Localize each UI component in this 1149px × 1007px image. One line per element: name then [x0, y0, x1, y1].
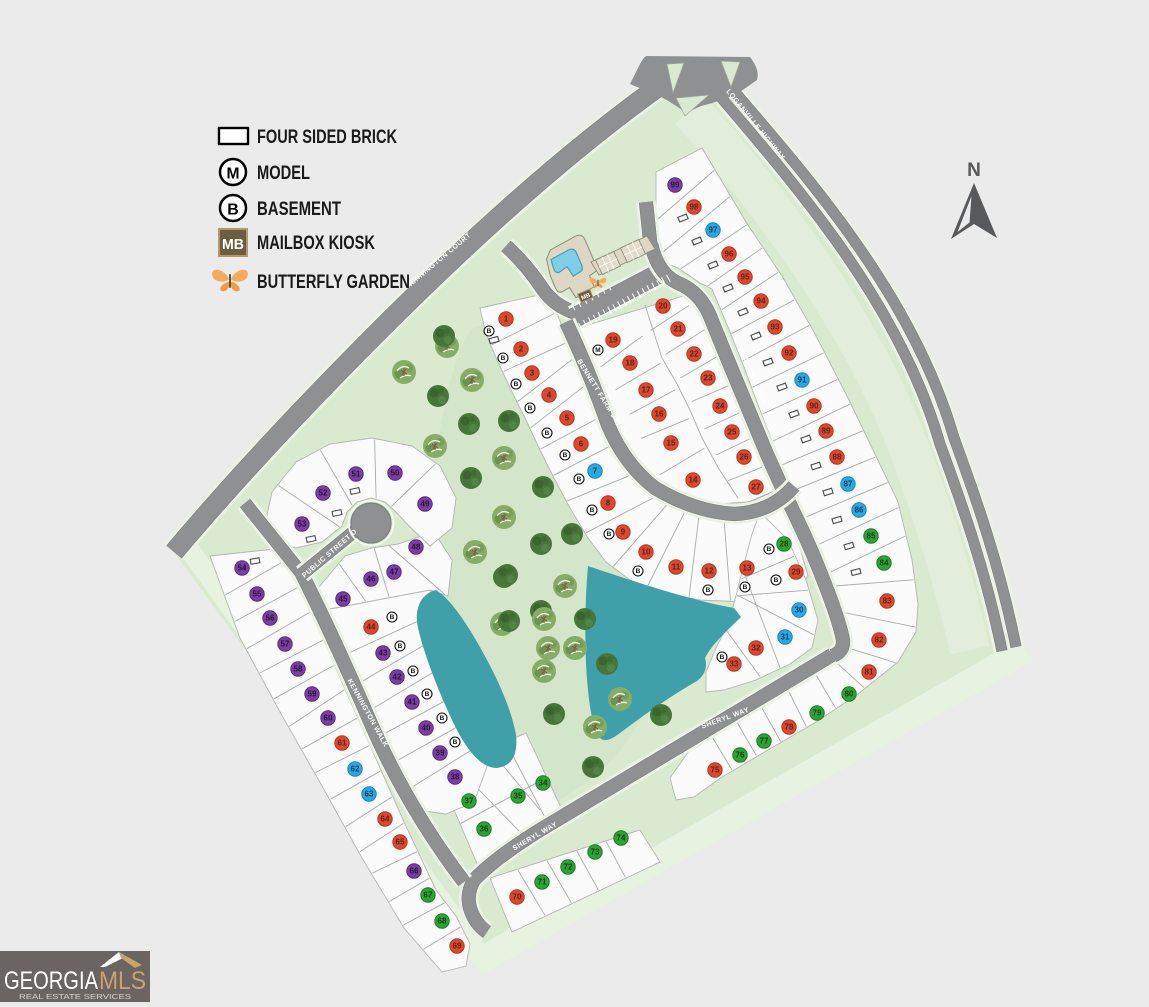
svg-text:B: B — [453, 739, 458, 746]
svg-text:76: 76 — [736, 751, 745, 760]
svg-text:FOUR SIDED BRICK: FOUR SIDED BRICK — [257, 127, 397, 148]
svg-text:GEORGIA: GEORGIA — [4, 967, 98, 995]
svg-text:23: 23 — [704, 374, 713, 383]
svg-text:B: B — [390, 614, 395, 621]
svg-text:5: 5 — [565, 414, 570, 423]
svg-text:BUTTERFLY GARDEN: BUTTERFLY GARDEN — [257, 272, 410, 293]
svg-text:20: 20 — [659, 302, 668, 311]
svg-text:43: 43 — [379, 649, 388, 658]
svg-text:B: B — [398, 643, 403, 650]
svg-text:59: 59 — [308, 690, 317, 699]
svg-text:60: 60 — [324, 714, 333, 723]
svg-text:74: 74 — [617, 834, 626, 843]
svg-text:49: 49 — [421, 500, 430, 509]
svg-text:19: 19 — [609, 336, 618, 345]
svg-text:98: 98 — [690, 203, 699, 212]
svg-text:24: 24 — [716, 402, 725, 411]
svg-text:97: 97 — [709, 226, 718, 235]
svg-text:54: 54 — [238, 564, 247, 573]
svg-text:7: 7 — [593, 467, 598, 476]
svg-text:71: 71 — [538, 878, 547, 887]
svg-text:31: 31 — [781, 633, 790, 642]
svg-text:B: B — [411, 668, 416, 675]
svg-text:4: 4 — [547, 391, 552, 400]
svg-text:83: 83 — [883, 597, 892, 606]
svg-text:21: 21 — [674, 325, 683, 334]
svg-text:30: 30 — [795, 606, 804, 615]
svg-text:25: 25 — [728, 428, 737, 437]
svg-text:B: B — [545, 430, 550, 437]
svg-text:66: 66 — [410, 867, 419, 876]
svg-text:92: 92 — [785, 349, 794, 358]
svg-text:82: 82 — [875, 636, 884, 645]
svg-text:77: 77 — [760, 737, 769, 746]
svg-text:B: B — [767, 546, 772, 553]
svg-text:87: 87 — [844, 480, 853, 489]
svg-text:26: 26 — [740, 453, 749, 462]
svg-text:N: N — [967, 160, 981, 181]
svg-text:28: 28 — [780, 540, 789, 549]
svg-text:46: 46 — [367, 575, 376, 584]
svg-text:B: B — [590, 507, 595, 514]
svg-text:MAILBOX KIOSK: MAILBOX KIOSK — [257, 233, 375, 254]
svg-text:68: 68 — [438, 917, 447, 926]
svg-text:70: 70 — [513, 893, 522, 902]
svg-text:38: 38 — [451, 773, 460, 782]
svg-text:MB: MB — [222, 236, 244, 253]
svg-text:MODEL: MODEL — [257, 163, 310, 184]
svg-text:64: 64 — [381, 815, 390, 824]
svg-text:62: 62 — [351, 765, 360, 774]
svg-text:B: B — [514, 381, 519, 388]
svg-text:94: 94 — [757, 297, 766, 306]
svg-text:B: B — [487, 328, 492, 335]
svg-text:B: B — [425, 691, 430, 698]
svg-text:65: 65 — [396, 838, 405, 847]
svg-text:37: 37 — [465, 797, 474, 806]
svg-text:69: 69 — [453, 942, 462, 951]
svg-text:99: 99 — [671, 181, 680, 190]
svg-text:B: B — [743, 584, 748, 591]
svg-text:91: 91 — [798, 376, 807, 385]
svg-text:32: 32 — [752, 644, 761, 653]
svg-text:16: 16 — [655, 410, 664, 419]
svg-text:B: B — [563, 452, 568, 459]
svg-text:45: 45 — [339, 595, 348, 604]
svg-text:52: 52 — [319, 489, 328, 498]
svg-text:14: 14 — [689, 476, 698, 485]
svg-text:73: 73 — [591, 848, 600, 857]
svg-text:36: 36 — [480, 825, 489, 834]
svg-text:REAL ESTATE SERVICES: REAL ESTATE SERVICES — [19, 994, 131, 1001]
svg-text:55: 55 — [253, 590, 262, 599]
svg-text:41: 41 — [408, 698, 417, 707]
svg-text:B: B — [440, 715, 445, 722]
svg-text:72: 72 — [564, 863, 573, 872]
svg-text:3: 3 — [530, 369, 535, 378]
svg-text:B: B — [577, 476, 582, 483]
svg-text:81: 81 — [865, 668, 874, 677]
svg-text:17: 17 — [642, 386, 651, 395]
svg-text:13: 13 — [743, 564, 752, 573]
svg-text:MLS: MLS — [99, 967, 146, 995]
svg-text:90: 90 — [810, 402, 819, 411]
svg-text:44: 44 — [367, 623, 376, 632]
svg-text:48: 48 — [412, 543, 421, 552]
svg-text:B: B — [501, 355, 506, 362]
svg-text:47: 47 — [390, 568, 399, 577]
svg-text:6: 6 — [579, 440, 584, 449]
svg-text:86: 86 — [855, 506, 864, 515]
svg-text:93: 93 — [771, 323, 780, 332]
svg-text:53: 53 — [298, 520, 307, 529]
svg-text:1: 1 — [504, 315, 509, 324]
svg-text:80: 80 — [845, 690, 854, 699]
svg-text:67: 67 — [424, 891, 433, 900]
svg-text:84: 84 — [880, 559, 889, 568]
svg-text:18: 18 — [626, 359, 635, 368]
svg-text:B: B — [227, 202, 239, 219]
svg-text:M: M — [595, 347, 600, 354]
svg-text:10: 10 — [642, 548, 651, 557]
svg-text:89: 89 — [822, 427, 831, 436]
svg-text:B: B — [706, 587, 711, 594]
svg-text:B: B — [774, 577, 779, 584]
svg-text:M: M — [227, 166, 240, 183]
svg-text:B: B — [528, 405, 533, 412]
svg-text:51: 51 — [352, 470, 361, 479]
svg-text:42: 42 — [393, 673, 402, 682]
svg-text:63: 63 — [365, 790, 374, 799]
svg-text:58: 58 — [294, 665, 303, 674]
svg-text:12: 12 — [705, 567, 714, 576]
svg-text:79: 79 — [813, 709, 822, 718]
svg-text:11: 11 — [672, 563, 681, 572]
svg-text:95: 95 — [741, 273, 750, 282]
svg-text:75: 75 — [711, 766, 720, 775]
svg-text:33: 33 — [730, 660, 739, 669]
svg-text:50: 50 — [391, 469, 400, 478]
svg-text:88: 88 — [833, 453, 842, 462]
svg-text:39: 39 — [436, 749, 445, 758]
svg-text:BASEMENT: BASEMENT — [257, 199, 341, 220]
svg-text:35: 35 — [514, 792, 523, 801]
svg-text:40: 40 — [422, 724, 431, 733]
svg-text:22: 22 — [690, 350, 699, 359]
svg-text:B: B — [607, 531, 612, 538]
svg-text:15: 15 — [667, 439, 676, 448]
svg-text:56: 56 — [266, 614, 275, 623]
svg-text:34: 34 — [539, 779, 548, 788]
svg-text:2: 2 — [519, 345, 524, 354]
svg-text:61: 61 — [338, 739, 347, 748]
svg-text:85: 85 — [867, 532, 876, 541]
svg-text:B: B — [720, 654, 725, 661]
svg-text:27: 27 — [752, 483, 761, 492]
svg-text:9: 9 — [621, 528, 626, 537]
svg-text:B: B — [636, 568, 641, 575]
svg-text:8: 8 — [606, 499, 611, 508]
svg-text:57: 57 — [281, 640, 290, 649]
svg-text:29: 29 — [792, 568, 801, 577]
svg-text:78: 78 — [785, 723, 794, 732]
svg-text:96: 96 — [725, 250, 734, 259]
